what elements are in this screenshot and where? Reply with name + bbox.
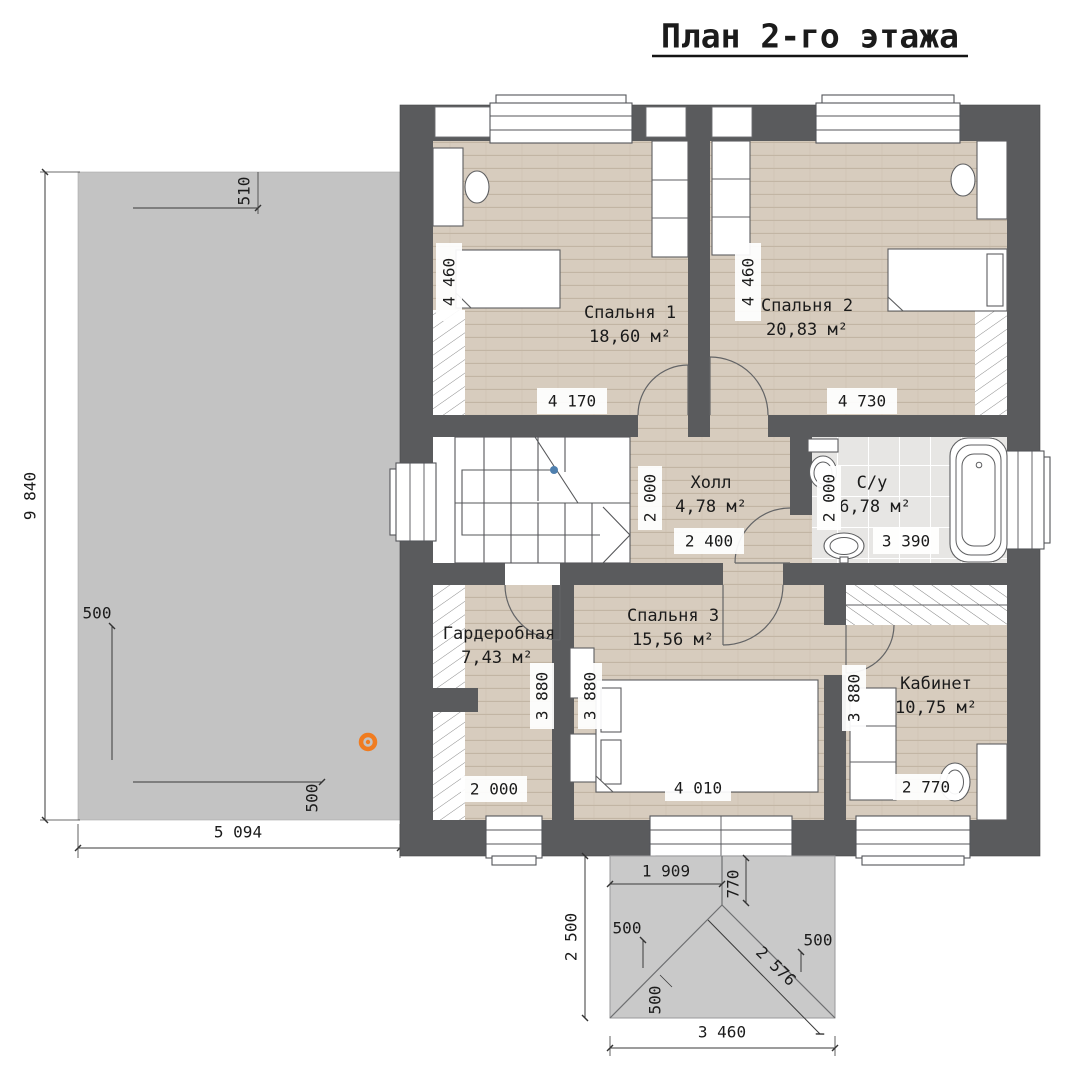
window-frame [486,816,542,858]
bedroom2-door-gap [710,415,768,437]
svg-text:770: 770 [724,870,743,899]
window-sill [492,856,536,865]
dim-bedroom1-v: 4 460 [436,243,462,321]
bed-pillow [601,688,621,732]
room-area-bedroom1: 18,60 м² [589,327,671,347]
wardrobe-door-gap [505,563,560,585]
dim-label-1909: 1 909 [642,862,690,881]
nightstand [570,734,596,782]
terrace-roof: 9 840 510 500 500 5 094 [21,172,401,858]
stair-start-dot [550,466,558,474]
svg-text:3 880: 3 880 [581,672,600,720]
svg-text:3 880: 3 880 [845,674,864,722]
sink-base [840,557,848,563]
dim-label-5094: 5 094 [214,823,262,842]
svg-text:510: 510 [235,177,254,206]
dim-wardrobe-h: 2 000 [461,776,527,802]
dim-label-2500: 2 500 [562,913,581,961]
svg-text:4 170: 4 170 [548,392,596,411]
floor-plan-canvas: План 2-го этажа 9 840 510 500 500 5 094 [0,0,1082,1080]
room-label-bathroom: С/у [857,473,888,493]
slope-hatch-bedroom2 [975,307,1007,415]
room-label-bedroom1: Спальня 1 [584,303,676,323]
svg-text:2 000: 2 000 [641,474,660,522]
window-wardrobe [486,816,542,865]
svg-text:2 000: 2 000 [470,780,518,799]
svg-text:4 460: 4 460 [440,258,459,306]
dim-hall-v: 2 000 [638,466,662,530]
wall-niche [712,107,752,137]
dim-label-500-top: 500 [83,604,112,623]
svg-text:2 770: 2 770 [902,778,950,797]
bedroom1-door-gap [638,415,688,437]
dim-label-770: 770 [724,870,743,899]
svg-text:9 840: 9 840 [21,472,40,520]
chair [951,164,975,196]
window-frame [1004,451,1044,549]
desk [433,148,463,226]
dim-wardrobe-v: 3 880 [530,663,554,729]
room-label-office: Кабинет [900,674,972,694]
dim-label-3460: 3 460 [698,1023,746,1042]
dim-office-v: 3 880 [842,665,866,731]
window-office [856,816,970,865]
room-label-hall: Холл [691,473,732,493]
slope-hatch-bedroom1 [433,310,465,415]
bed [456,250,560,308]
porch-roof: 1 909 770 2 500 500 500 2 576 500 3 460 [562,856,836,1056]
svg-text:4 010: 4 010 [674,779,722,798]
dim-label-9840: 9 840 [21,472,40,520]
room-label-bedroom3: Спальня 3 [627,606,719,626]
bathtub-outer [950,438,1007,562]
window-stairs [390,463,436,541]
slope-hatch-wardrobe-bottom [433,712,465,820]
title-block: План 2-го этажа [652,17,968,57]
room-area-wardrobe: 7,43 м² [461,648,533,668]
dim-bedroom3-v: 3 880 [578,663,602,729]
dim-bedroom2-v: 4 460 [735,243,761,321]
dim-bedroom1-h: 4 170 [537,388,607,414]
window-frame [856,816,970,858]
dim-bedroom3-h: 4 010 [665,775,731,801]
roof-marker-dot [366,740,370,744]
svg-text:4 460: 4 460 [739,258,758,306]
dim-bathroom-v: 2 000 [817,466,841,530]
svg-text:2 400: 2 400 [685,532,733,551]
bed-pillow [601,740,621,784]
window-sill [862,856,964,865]
dim-bedroom2-h: 4 730 [827,388,897,414]
svg-text:3 390: 3 390 [882,532,930,551]
dim-label-510: 510 [235,177,254,206]
page-title: План 2-го этажа [661,17,959,56]
wall-stub [433,688,478,712]
sofa [652,141,688,257]
svg-text:2 500: 2 500 [562,913,581,961]
wall-niche [646,107,686,137]
room-label-wardrobe: Гардеробная [443,624,556,644]
svg-text:500: 500 [646,986,665,1015]
dim-label-500-left: 500 [613,919,642,938]
toilet-tank [808,439,838,452]
room-area-bedroom2: 20,83 м² [766,320,848,340]
room-area-hall: 4,78 м² [675,497,747,517]
bathroom-door-gap [790,515,812,563]
room-area-office: 10,75 м² [895,698,977,718]
desk [977,744,1007,820]
desk [977,141,1007,219]
dim-label-500-right: 500 [804,931,833,950]
chair [465,171,489,203]
window-frame [396,463,436,541]
dim-office-h: 2 770 [893,774,959,800]
wall-niche [435,107,491,137]
window-frame [816,103,960,143]
svg-text:2 000: 2 000 [820,474,839,522]
sofa [712,141,750,255]
dim-bathroom-h: 3 390 [873,528,939,554]
room-label-bedroom2: Спальня 2 [761,296,853,316]
bedroom3-door-gap [723,563,783,585]
room-area-bedroom3: 15,56 м² [632,630,714,650]
window-bedroom2 [816,95,960,143]
svg-text:500: 500 [303,784,322,813]
window-bedroom1 [490,95,632,143]
dim-label-500-bottom-left: 500 [646,986,665,1015]
dim-label-500-bottom: 500 [303,784,322,813]
dim-hall-h: 2 400 [674,528,744,554]
bed-pillow [987,254,1003,306]
svg-text:4 730: 4 730 [838,392,886,411]
svg-text:3 880: 3 880 [533,672,552,720]
room-area-bathroom: 6,78 м² [839,497,911,517]
window-bathroom [1004,451,1050,549]
window-frame [490,103,632,143]
terrace-surface [78,172,400,820]
